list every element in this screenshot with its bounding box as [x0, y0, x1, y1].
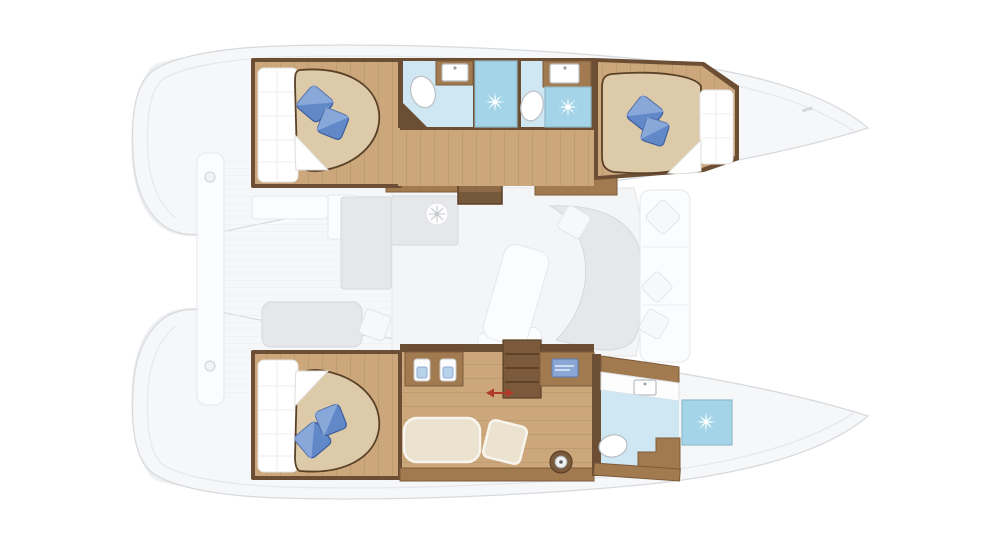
head-wall — [592, 354, 601, 476]
galley-fixture-icon — [426, 203, 448, 225]
cockpit-bench-aft — [252, 196, 328, 219]
head-port-aft — [400, 58, 518, 130]
faucet-icon — [563, 66, 566, 69]
faucet-icon — [453, 66, 456, 69]
galley-counter-side — [341, 197, 391, 289]
port-hull-corridor — [398, 128, 594, 186]
shower-drain-icon — [486, 93, 504, 111]
shelf-unit — [503, 340, 541, 398]
floorplan: Catamaran interior layout plan — top-dow… — [0, 0, 1007, 556]
laptop-icon — [552, 359, 578, 377]
shower — [475, 61, 517, 127]
deck-hatch-icon — [205, 172, 215, 182]
cockpit-bench-forward — [262, 302, 362, 347]
floorplan-canvas — [0, 0, 1007, 556]
shower-drain-icon — [559, 98, 577, 116]
mattress-shelf — [258, 68, 298, 182]
cabin-starboard-aft — [251, 350, 402, 480]
deck-hatch-icon — [205, 361, 215, 371]
sink — [634, 380, 656, 395]
cabin-port-forward — [594, 58, 739, 180]
vanity-basin — [440, 359, 456, 381]
lounge-sofa — [404, 418, 480, 462]
galley-counter-aft — [391, 196, 458, 245]
foredeck-lounge — [638, 190, 690, 362]
vanity-basin — [414, 359, 430, 381]
washing-machine-icon — [550, 451, 572, 473]
head-port-forward — [518, 58, 594, 130]
ottoman — [482, 419, 528, 465]
owner-lounge — [400, 340, 594, 481]
mattress-shelf — [258, 360, 298, 472]
cabin-port-aft — [251, 58, 402, 188]
faucet-icon — [644, 383, 647, 386]
shower-drain-icon — [697, 413, 715, 431]
